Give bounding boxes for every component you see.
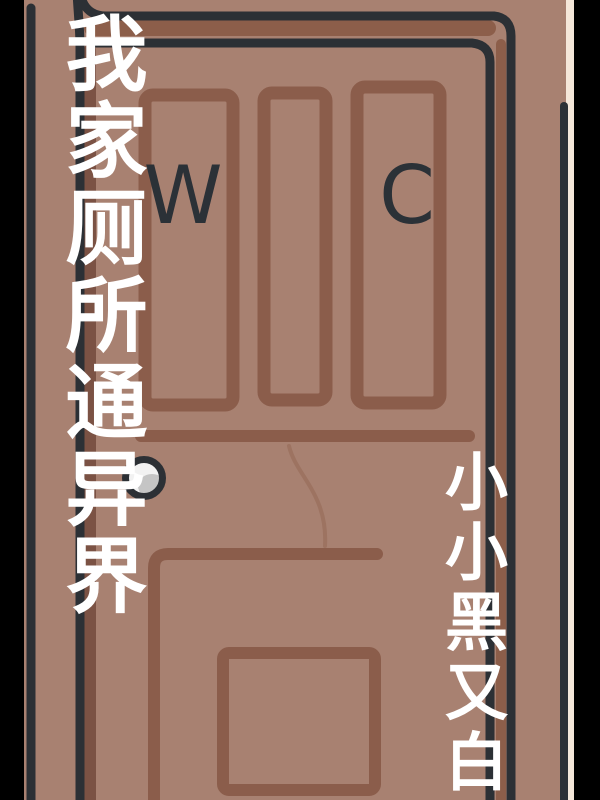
door-letter-w: W (143, 156, 222, 236)
door-letter-c: C (379, 156, 435, 236)
book-cover: W C 我家厕所通异界 小小黑又白 (0, 0, 600, 800)
book-title: 我家厕所通异界 (57, 11, 139, 620)
right-black-band (574, 0, 600, 800)
author-name: 小小黑又白 (440, 449, 503, 799)
